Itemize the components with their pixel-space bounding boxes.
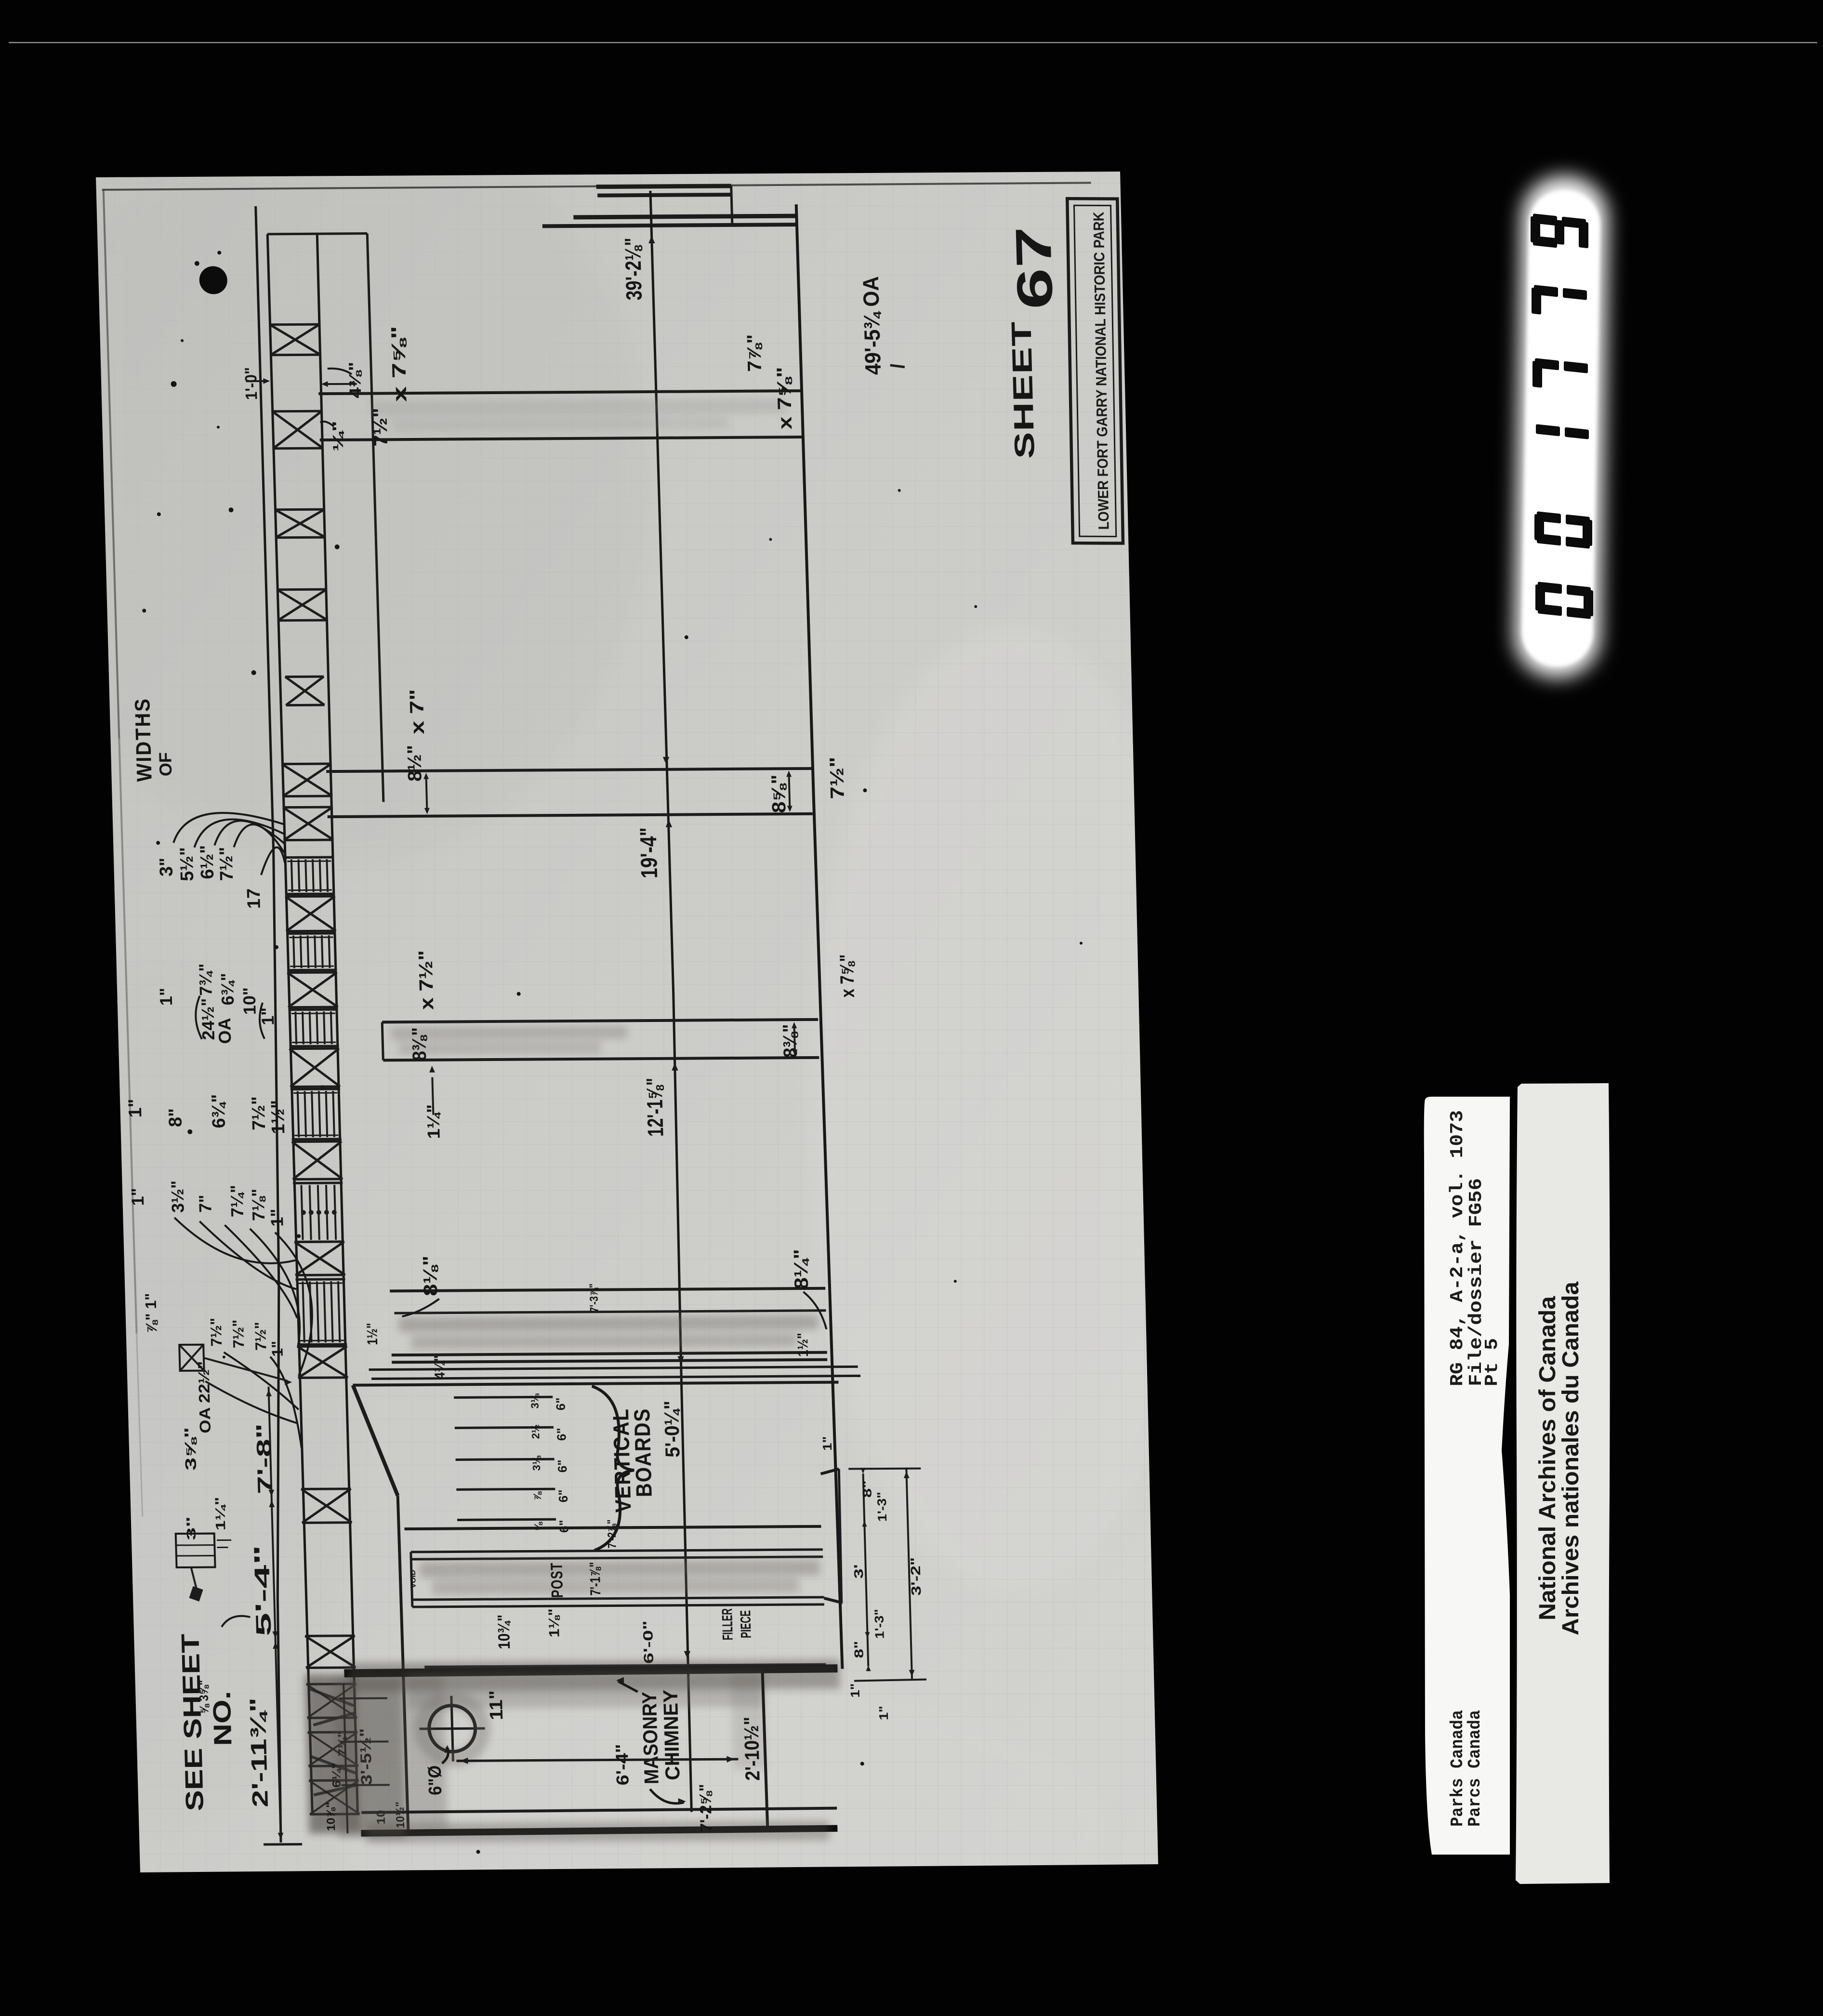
svg-text:1": 1": [125, 1099, 145, 1117]
svg-text:1": 1": [156, 988, 176, 1006]
svg-text:Parcs Canada: Parcs Canada: [1465, 1710, 1485, 1827]
svg-text:3'-2": 3'-2": [908, 1557, 924, 1596]
svg-text:4⅜": 4⅜": [345, 362, 365, 398]
svg-text:7½": 7½": [826, 756, 848, 799]
svg-text:VOID: VOID: [409, 1570, 418, 1588]
svg-text:7'-2⅞": 7'-2⅞": [605, 1519, 619, 1548]
svg-text:Parks Canada: Parks Canada: [1448, 1710, 1467, 1827]
svg-text:8⅛": 8⅛": [419, 1256, 441, 1296]
svg-text:3": 3": [184, 1516, 198, 1540]
svg-text:1": 1": [127, 1188, 147, 1206]
svg-text:12'-1⅝": 12'-1⅝": [641, 1078, 668, 1137]
svg-text:39'-2⅛": 39'-2⅛": [620, 238, 647, 300]
svg-text:⅞" 1": ⅞" 1": [142, 1293, 160, 1334]
svg-text:6'-4": 6'-4": [612, 1744, 633, 1785]
svg-text:2'-11¾": 2'-11¾": [245, 1698, 273, 1807]
svg-text:6": 6": [556, 1520, 571, 1533]
svg-text:8½": 8½": [404, 745, 426, 782]
svg-text:Archives nationales du Canada: Archives nationales du Canada: [1558, 1282, 1584, 1635]
svg-text:6": 6": [555, 1489, 570, 1502]
svg-text:3½": 3½": [167, 1180, 188, 1213]
svg-text:8": 8": [851, 1641, 866, 1658]
svg-text:4¼": 4¼": [432, 1355, 448, 1379]
svg-text:Pt 5: Pt 5: [1482, 1338, 1503, 1386]
svg-text:3⅛: 3⅛: [530, 1455, 542, 1471]
svg-text:1": 1": [268, 1341, 286, 1357]
svg-text:49'-5¾ OA: 49'-5¾ OA: [858, 276, 886, 375]
svg-text:2½: 2½: [529, 1424, 542, 1439]
svg-text:11": 11": [486, 1690, 507, 1720]
svg-text:x 7½": x 7½": [415, 950, 437, 1010]
svg-text:x 7⅝": x 7⅝": [836, 954, 859, 997]
svg-text:x 7": x 7": [406, 689, 429, 734]
svg-text:7¼": 7¼": [226, 1185, 247, 1217]
svg-text:1": 1": [876, 1706, 891, 1720]
svg-text:5'-0¼": 5'-0¼": [660, 1401, 684, 1458]
svg-text:7'-2⅝": 7'-2⅝": [696, 1784, 716, 1832]
svg-text:OA 22½": OA 22½": [195, 1361, 214, 1433]
svg-text:WIDTHS: WIDTHS: [131, 697, 157, 782]
svg-text:8⅜": 8⅜": [779, 1024, 801, 1058]
svg-text:6¾": 6¾": [208, 1094, 229, 1128]
svg-text:8⅝": 8⅝": [768, 774, 790, 813]
svg-text:1'-3": 1'-3": [874, 1492, 890, 1522]
svg-text:OA: OA: [214, 1018, 235, 1044]
svg-text:7'-3⅞": 7'-3⅞": [587, 1284, 601, 1313]
svg-text:3': 3': [851, 1564, 866, 1578]
svg-text:2'-10½": 2'-10½": [740, 1717, 764, 1781]
svg-text:1½": 1½": [795, 1333, 811, 1357]
svg-text:PIECE: PIECE: [738, 1610, 754, 1638]
svg-text:CHIMNEY: CHIMNEY: [659, 1690, 684, 1780]
svg-text:7½": 7½": [248, 1096, 269, 1130]
svg-text:19'-4": 19'-4": [635, 827, 662, 878]
svg-text:7½": 7½": [229, 1319, 248, 1348]
svg-text:1": 1": [847, 1683, 862, 1698]
svg-text:6": 6": [554, 1428, 569, 1441]
svg-text:6"Ø: 6"Ø: [425, 1765, 446, 1795]
svg-text:17: 17: [244, 889, 264, 909]
svg-text:3⅝": 3⅝": [181, 1427, 199, 1471]
svg-text:BOARDS: BOARDS: [629, 1408, 657, 1497]
svg-text:1": 1": [267, 1209, 287, 1227]
svg-text:3": 3": [156, 858, 177, 876]
svg-text:7½": 7½": [251, 1322, 270, 1351]
svg-text:National Archives of Canada: National Archives of Canada: [1535, 1296, 1560, 1620]
svg-text:6¾": 6¾": [217, 973, 238, 1005]
svg-text:RG 84, A-2-a, vol. 1073: RG 84, A-2-a, vol. 1073: [1447, 1110, 1468, 1386]
svg-text:7'-1⅞": 7'-1⅞": [587, 1562, 604, 1596]
svg-text:7½": 7½": [216, 847, 237, 881]
svg-text:6": 6": [553, 1397, 568, 1410]
svg-text:1": 1": [819, 1436, 834, 1451]
svg-text:OF: OF: [155, 752, 175, 776]
svg-text:7'-8": 7'-8": [252, 1423, 277, 1494]
svg-text:7½": 7½": [207, 1318, 225, 1347]
svg-text:1⅛": 1⅛": [546, 1608, 563, 1637]
svg-text:5½": 5½": [176, 847, 198, 881]
svg-text:7¾": 7¾": [195, 963, 216, 995]
svg-text:6'-0": 6'-0": [640, 1620, 656, 1664]
svg-text:SEE SHEET: SEE SHEET: [176, 1633, 209, 1811]
svg-text:8": 8": [859, 1480, 874, 1498]
svg-text:8⅜": 8⅜": [409, 1027, 431, 1061]
svg-text:7½": 7½": [370, 408, 392, 446]
svg-text:POST: POST: [547, 1562, 567, 1598]
svg-text:6½": 6½": [197, 845, 218, 879]
svg-text:67: 67: [1005, 226, 1064, 310]
svg-text:3⅛: 3⅛: [528, 1393, 541, 1408]
svg-text:1'-0": 1'-0": [242, 367, 261, 400]
svg-text:5'-4": 5'-4": [250, 1545, 276, 1636]
svg-text:7": 7": [195, 1194, 215, 1212]
svg-text:FILLER: FILLER: [719, 1608, 736, 1640]
svg-text:SHEET: SHEET: [1005, 321, 1041, 459]
svg-text:7⅞": 7⅞": [743, 334, 766, 372]
svg-text:10¾": 10¾": [494, 1615, 514, 1649]
svg-text:x 7⅝": x 7⅝": [773, 367, 796, 429]
svg-text:1¼": 1¼": [212, 1497, 228, 1530]
svg-text:10": 10": [239, 987, 260, 1015]
svg-text:x 7⅝": x 7⅝": [387, 326, 410, 402]
svg-text:1'-3": 1'-3": [872, 1609, 887, 1639]
svg-text:1½": 1½": [364, 1323, 381, 1345]
svg-text:10⅞": 10⅞": [324, 1802, 338, 1831]
svg-text:⅞: ⅞: [531, 1491, 543, 1500]
svg-text:1½": 1½": [268, 1100, 289, 1134]
svg-text:7⅛": 7⅛": [248, 1189, 268, 1221]
svg-text:6": 6": [555, 1459, 570, 1472]
svg-text:NO.: NO.: [208, 1691, 237, 1746]
svg-text:8¼": 8¼": [790, 1249, 812, 1289]
svg-text:8": 8": [165, 1108, 186, 1127]
